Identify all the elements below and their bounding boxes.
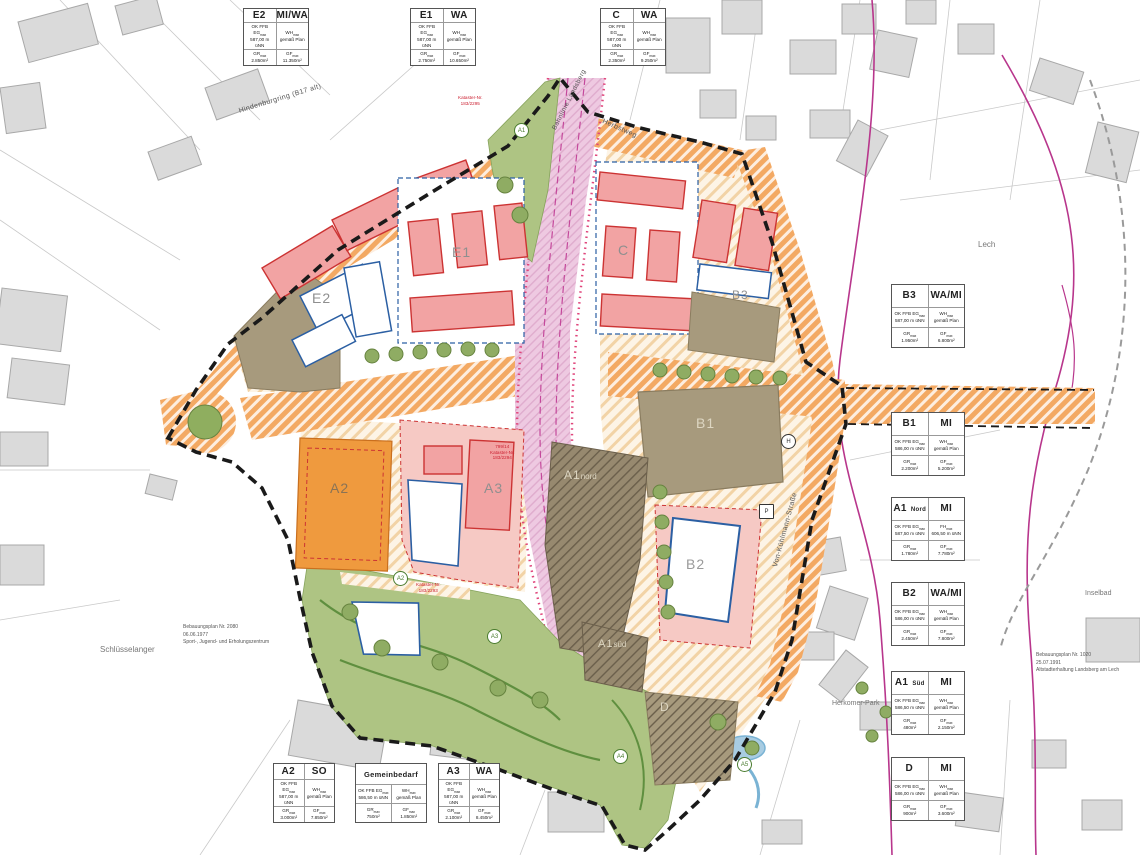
kataster-annotation-2: 799/14Kataster-Nr.183/2294	[490, 444, 515, 461]
legend-box-b1: B1 MI OK FFB EGmax586,00 m üNN WHmaxgemä…	[891, 412, 965, 476]
legend-box-a2: A2 SO OK FFB EGmax587,00 m üNN WHmaxgemä…	[273, 763, 335, 823]
place-label-inselbad: Inselbad	[1085, 590, 1111, 597]
zone-label-b1: B1	[696, 415, 715, 431]
compensation-marker-a1: A1	[514, 123, 529, 138]
kataster-annotation-3: Kataster-Nr.183/2293	[416, 582, 441, 593]
kataster-annotation-1: Kataster-Nr.183/2295	[458, 95, 483, 106]
block-b1	[638, 385, 783, 497]
legend-box-e1: E1 WA OK FFB EGmax587,00 m üNN WHmaxgemä…	[410, 8, 476, 66]
zone-label-d: D	[660, 700, 670, 714]
legend-box-a1-sued: A1 Süd MI OK FFB EGmax586,50 m üNN WHmax…	[891, 671, 965, 735]
legend-box-a1-nord: A1 Nord MI OK FFB EGmax587,50 m üNN FHma…	[891, 497, 965, 561]
bebauungsplan-map: E2 MI/WA OK FFB EGmax587,00 m üNN WHmaxg…	[0, 0, 1140, 855]
place-label-schluesselanger: Schlüsselanger	[100, 645, 155, 654]
compensation-marker-a2: A2	[393, 571, 408, 586]
zone-label-e2: E2	[312, 290, 331, 306]
zone-label-a3: A3	[484, 480, 503, 496]
zone-label-b3: B3	[732, 288, 749, 302]
compensation-marker-a3: A3	[487, 629, 502, 644]
compensation-marker-a4: A4	[613, 749, 628, 764]
zone-label-b2: B2	[686, 556, 705, 572]
legend-box-b3: B3 WA/MI OK FFB EGmax587,00 m üNN WHmaxg…	[891, 284, 965, 348]
legend-box-e2: E2 MI/WA OK FFB EGmax587,00 m üNN WHmaxg…	[243, 8, 309, 66]
zone-label-a1-nord: A1nord	[564, 468, 597, 482]
bus-stop-marker: H	[781, 434, 796, 449]
parking-marker: P	[759, 504, 774, 519]
note-bebauungsplan-1020: Bebauungsplan Nr. 102025.07.1991Altstadt…	[1036, 652, 1119, 675]
legend-box-d: D MI OK FFB EGmax586,00 m üNN WHmaxgemäß…	[891, 757, 965, 821]
note-bebauungsplan-2080: Bebauungsplan Nr. 208006.06.1977Sport-, …	[183, 624, 269, 647]
map-canvas	[0, 0, 1140, 855]
legend-box-gemeinbedarf: Gemeinbedarf OK FFB EGmax586,50 m üNN WH…	[355, 763, 427, 823]
zone-label-c: C	[618, 242, 629, 258]
block-a2	[295, 438, 391, 571]
zone-label-e1: E1	[452, 244, 471, 260]
place-label-herkomer-park: Herkomer-Park	[832, 700, 879, 707]
compensation-marker-a5: A5	[737, 757, 752, 772]
zone-label-a1-sued: A1süd	[598, 638, 626, 650]
place-label-lech: Lech	[978, 240, 995, 249]
legend-box-b2: B2 WA/MI OK FFB EGmax586,00 m üNN WHmaxg…	[891, 582, 965, 646]
block-c	[596, 162, 698, 334]
legend-box-a3: A3 WA OK FFB EGmax587,00 m üNN WHmaxgemä…	[438, 763, 500, 823]
legend-box-c: C WA OK FFB EGmax587,00 m üNN WHmaxgemäß…	[600, 8, 666, 66]
zone-label-a2: A2	[330, 480, 349, 496]
